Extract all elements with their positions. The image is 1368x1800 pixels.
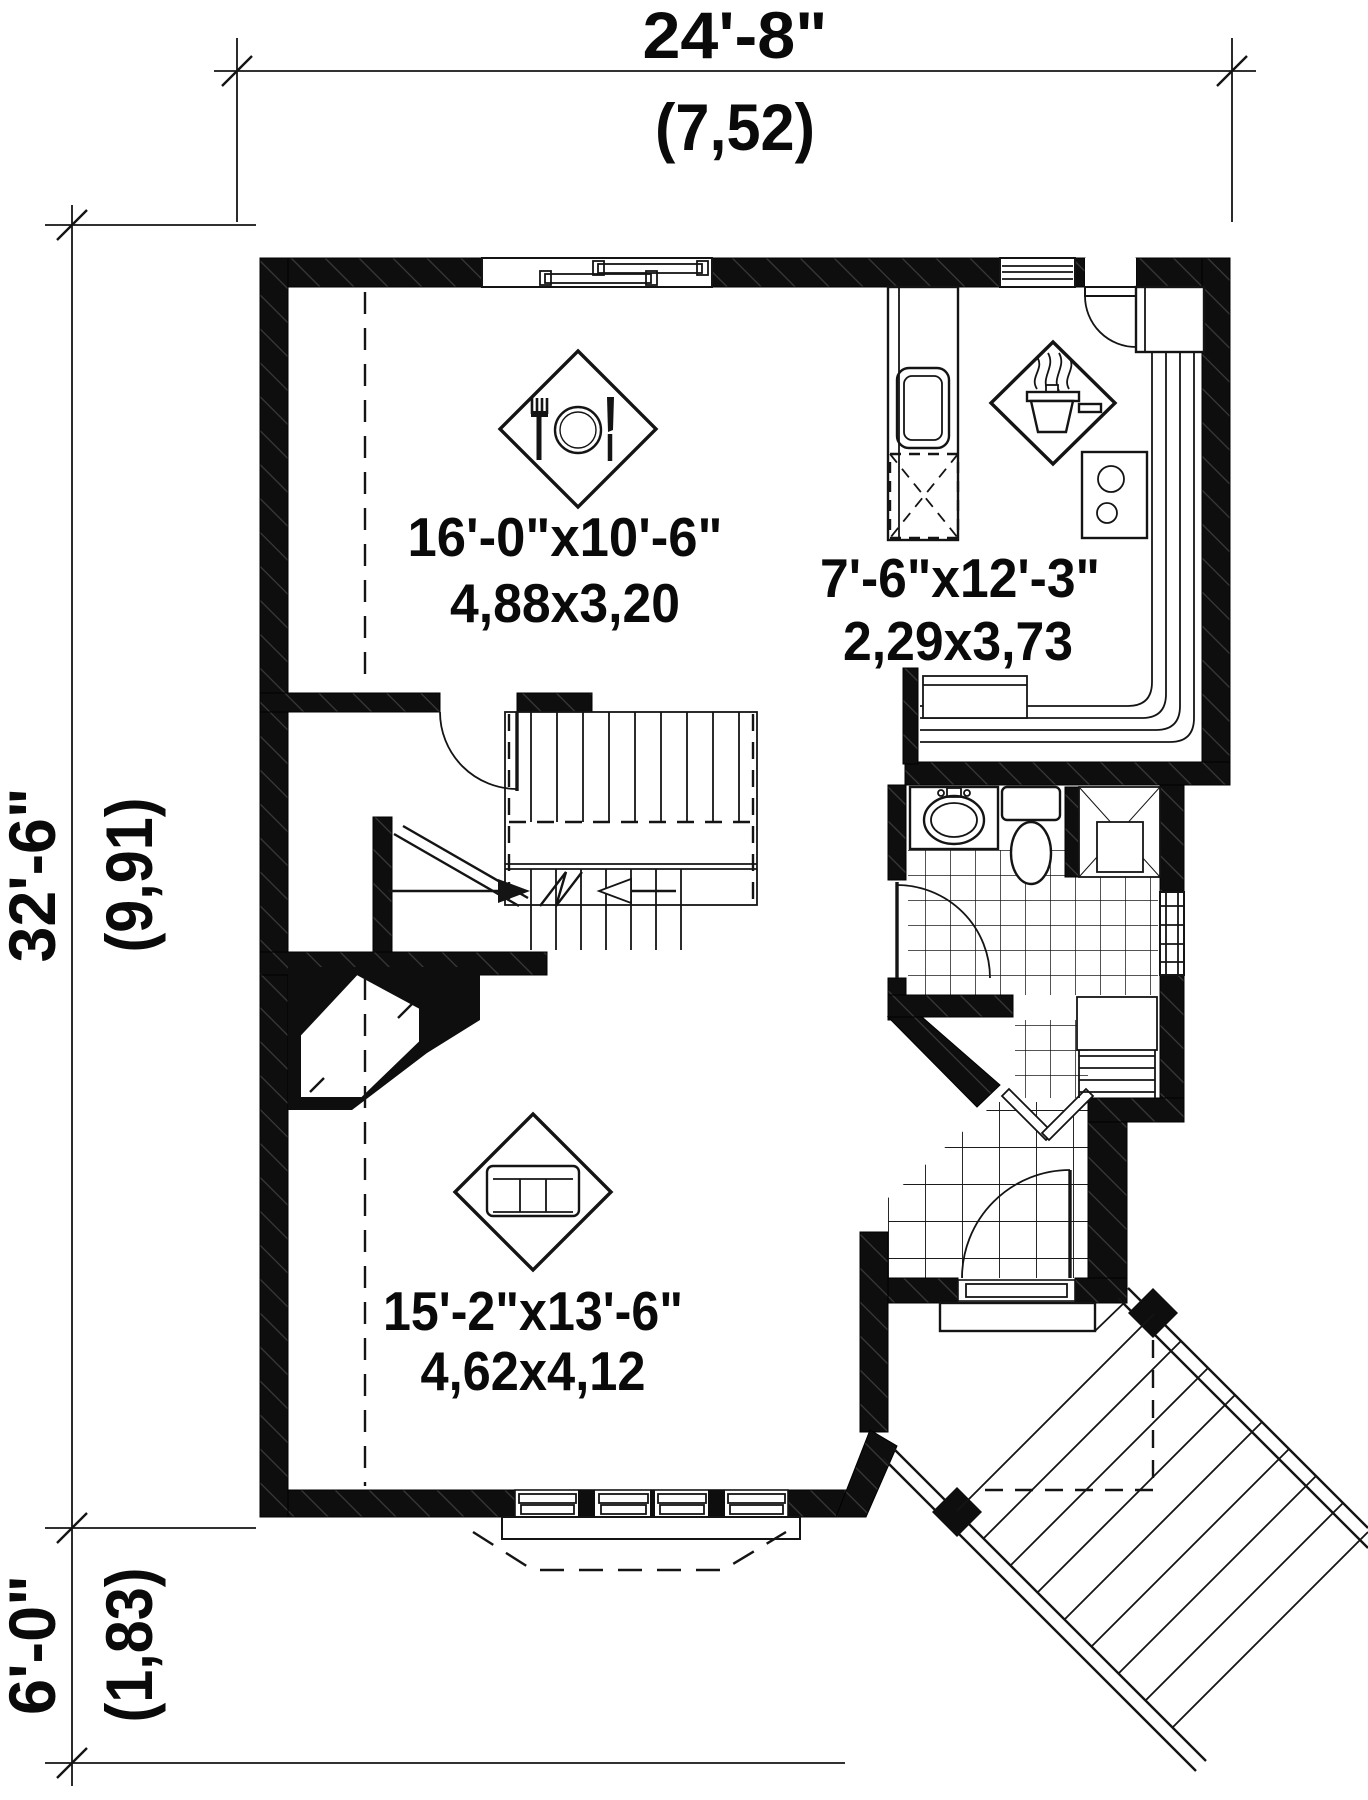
kitchen-label-imperial: 7'-6"x12'-3" (820, 547, 1100, 609)
porch-stair-treads (957, 1314, 1368, 1727)
entry-closet (1077, 997, 1157, 1098)
stair-down-arrow (599, 879, 631, 903)
dining-window (482, 258, 712, 287)
dim-width-metric: (7,52) (655, 90, 815, 164)
stair-up-arrow (498, 879, 530, 903)
dining-label-metric: 4,88x3,20 (450, 572, 680, 634)
nook-table (923, 676, 1027, 718)
cooking-pot-icon (991, 342, 1115, 464)
living-label-imperial: 15'-2"x13'-6" (383, 1280, 683, 1342)
dim-height-imperial: 32'-6" (0, 788, 69, 963)
corner-fireplace (288, 967, 480, 1110)
kitchen-island-counter (888, 287, 958, 540)
linen-closet (1079, 787, 1160, 877)
entry-stoop (940, 1303, 1095, 1331)
dining-table-icon (500, 351, 656, 507)
staircase (388, 712, 757, 950)
dim-width-imperial: 24'-8" (643, 0, 828, 72)
dim-porch-imperial: 6'-0" (0, 1575, 69, 1715)
bay-window (473, 1490, 800, 1570)
bathroom-window (1160, 892, 1184, 975)
entry-porch (883, 1288, 1368, 1771)
dim-height-metric: (9,91) (92, 798, 166, 953)
back-door (1085, 258, 1136, 347)
refrigerator (1136, 287, 1204, 352)
kitchen-label-metric: 2,29x3,73 (843, 610, 1073, 672)
dim-porch-metric: (1,83) (92, 1568, 166, 1723)
living-label-metric: 4,62x4,12 (421, 1340, 646, 1402)
floor-plan-sheet: 24'-8" (7,52) 32'-6" (9,91) 6'-0" (1,83) (0, 0, 1368, 1800)
range-cooktop (1082, 452, 1147, 538)
kitchen-window (1000, 258, 1075, 287)
dining-label-imperial: 16'-0"x10'-6" (408, 506, 723, 568)
floor-plan-canvas: 24'-8" (7,52) 32'-6" (9,91) 6'-0" (1,83) (0, 0, 1368, 1800)
sofa-icon (455, 1114, 611, 1270)
bathroom-vanity-sink (910, 787, 998, 849)
